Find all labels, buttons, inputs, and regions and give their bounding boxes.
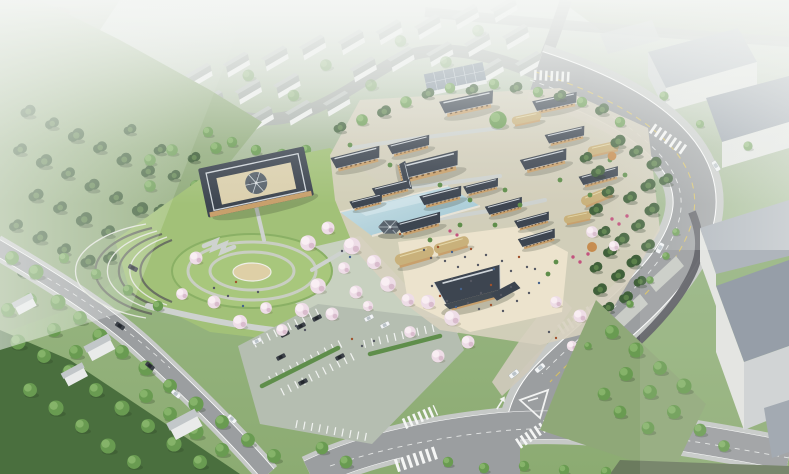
aerial-rendering-canvas: Aerial rendering of a traditional Korean… — [0, 0, 789, 474]
intersection-pavement — [400, 430, 520, 474]
haze-se — [640, 250, 789, 474]
aerial-rendering: Aerial rendering of a traditional Korean… — [0, 0, 789, 474]
haze-right — [580, 0, 789, 250]
